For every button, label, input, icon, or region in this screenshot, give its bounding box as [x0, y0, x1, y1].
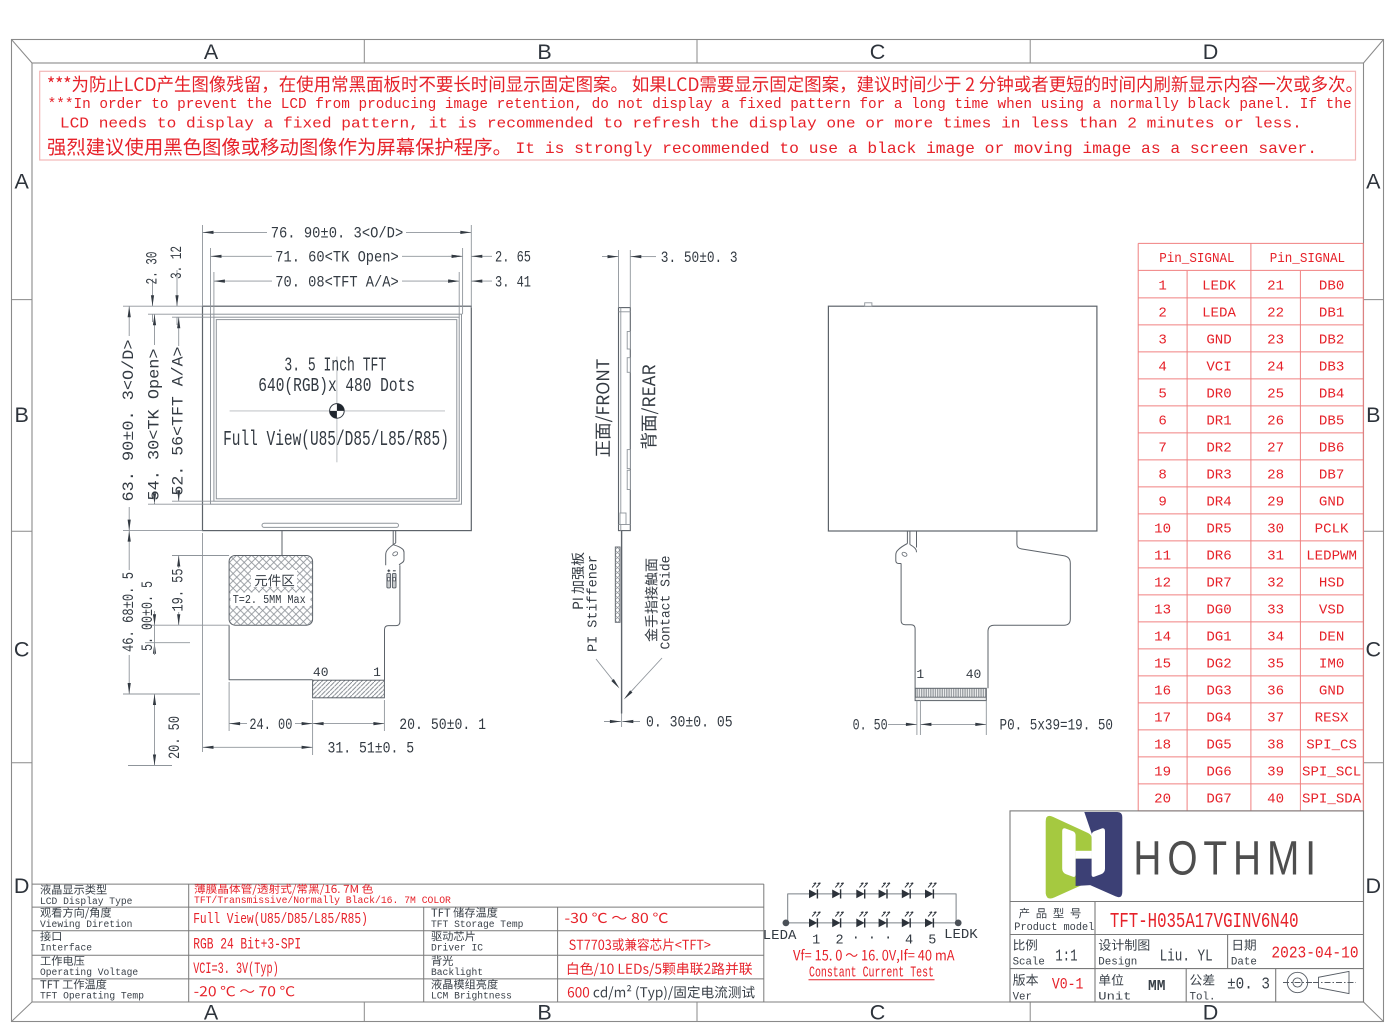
- svg-text:33: 33: [1267, 603, 1284, 619]
- svg-text:Contact Side: Contact Side: [660, 556, 675, 650]
- svg-text:Scale: Scale: [1013, 957, 1045, 969]
- svg-text:B: B: [15, 403, 29, 427]
- svg-text:DG1: DG1: [1206, 630, 1231, 646]
- svg-text:DB6: DB6: [1319, 441, 1344, 457]
- svg-text:DG6: DG6: [1206, 765, 1231, 781]
- svg-text:C: C: [870, 1001, 886, 1025]
- svg-text:640(RGB)x 480 Dots: 640(RGB)x 480 Dots: [258, 375, 415, 397]
- svg-text:3. 41: 3. 41: [495, 273, 531, 291]
- svg-text:PCLK: PCLK: [1315, 522, 1349, 538]
- svg-text:DG3: DG3: [1206, 684, 1231, 700]
- svg-text:1: 1: [373, 665, 381, 680]
- svg-text:DB3: DB3: [1319, 360, 1344, 376]
- svg-text:38: 38: [1267, 738, 1284, 754]
- svg-text:8: 8: [1158, 468, 1166, 484]
- svg-text:LEDK: LEDK: [944, 927, 978, 943]
- svg-text:13: 13: [1154, 603, 1171, 619]
- svg-text:A: A: [204, 40, 219, 64]
- svg-text:63. 90±0. 3<O/D>: 63. 90±0. 3<O/D>: [120, 340, 138, 502]
- svg-text:TFT/Transmissive/Normally Blac: TFT/Transmissive/Normally Black/16. 7M C…: [194, 895, 451, 907]
- svg-text:D: D: [1203, 1001, 1219, 1025]
- svg-text:±0. 3: ±0. 3: [1227, 976, 1270, 995]
- svg-text:46. 68±0. 5: 46. 68±0. 5: [120, 572, 138, 652]
- svg-text:0. 30±0. 05: 0. 30±0. 05: [646, 714, 733, 732]
- svg-text:Pin_SIGNAL: Pin_SIGNAL: [1270, 251, 1345, 267]
- svg-text:DR6: DR6: [1206, 549, 1231, 565]
- svg-text:11: 11: [1154, 549, 1171, 565]
- svg-text:2: 2: [835, 934, 843, 949]
- svg-text:GND: GND: [1206, 333, 1231, 349]
- svg-text:30: 30: [1267, 522, 1284, 538]
- svg-text:SPI_SDA: SPI_SDA: [1302, 792, 1362, 808]
- svg-text:34: 34: [1267, 630, 1284, 646]
- svg-text:D: D: [1203, 40, 1219, 64]
- svg-text:HSD: HSD: [1319, 576, 1344, 592]
- svg-text:29: 29: [1267, 495, 1284, 511]
- svg-text:C: C: [870, 40, 886, 64]
- svg-text:14: 14: [1154, 630, 1171, 646]
- svg-text:25: 25: [1267, 387, 1284, 403]
- svg-text:B: B: [1366, 403, 1380, 427]
- svg-text:LCD needs to display a fixed p: LCD needs to display a fixed pattern, it…: [60, 117, 1302, 133]
- svg-text:RGB 24 Bit+3-SPI: RGB 24 Bit+3-SPI: [193, 935, 301, 953]
- svg-text:1: 1: [1158, 279, 1166, 295]
- svg-text:20. 50±0. 1: 20. 50±0. 1: [399, 716, 486, 734]
- svg-text:IM0: IM0: [1319, 657, 1344, 673]
- svg-text:LEDK: LEDK: [1202, 279, 1236, 295]
- svg-text:DB4: DB4: [1319, 387, 1344, 403]
- svg-text:19: 19: [1154, 765, 1171, 781]
- svg-text:40: 40: [1267, 792, 1284, 808]
- svg-text:1:1: 1:1: [1055, 947, 1077, 966]
- svg-text:24: 24: [1267, 360, 1284, 376]
- svg-text:DR4: DR4: [1206, 495, 1231, 511]
- svg-text:DR0: DR0: [1206, 387, 1231, 403]
- svg-text:40: 40: [313, 665, 329, 680]
- svg-text:P0. 5x39=19. 50: P0. 5x39=19. 50: [1000, 717, 1114, 735]
- svg-text:MM: MM: [1148, 977, 1165, 995]
- svg-text:15: 15: [1154, 657, 1171, 673]
- svg-text:2: 2: [1158, 306, 1166, 322]
- svg-text:32: 32: [1267, 576, 1284, 592]
- svg-text:0. 50: 0. 50: [853, 717, 888, 735]
- svg-text:Liu. YL: Liu. YL: [1160, 948, 1213, 967]
- svg-text:***In order to prevent the LCD: ***In order to prevent the LCD from prod…: [48, 97, 1352, 113]
- svg-text:Tol.: Tol.: [1190, 992, 1216, 1004]
- svg-text:TFT Operating Temp: TFT Operating Temp: [40, 991, 144, 1003]
- svg-text:35: 35: [1267, 657, 1284, 673]
- svg-text:DB0: DB0: [1319, 279, 1344, 295]
- svg-text:VSD: VSD: [1319, 603, 1344, 619]
- svg-text:DG2: DG2: [1206, 657, 1231, 673]
- svg-text:3. 12: 3. 12: [168, 246, 186, 279]
- svg-text:TFT-H035A17VGINV6N40: TFT-H035A17VGINV6N40: [1110, 910, 1299, 934]
- svg-text:B: B: [537, 1001, 551, 1025]
- svg-text:Date: Date: [1231, 957, 1257, 969]
- svg-text:VCI=3. 3V(Typ): VCI=3. 3V(Typ): [193, 960, 279, 978]
- svg-text:Design: Design: [1098, 957, 1137, 969]
- svg-text:10: 10: [1154, 522, 1171, 538]
- svg-text:It is strongly recommended to: It is strongly recommended to use a blac…: [516, 140, 1318, 158]
- svg-text:18: 18: [1154, 738, 1171, 754]
- svg-text:DR1: DR1: [1206, 414, 1231, 430]
- svg-text:71. 60<TK Open>: 71. 60<TK Open>: [275, 249, 399, 267]
- svg-text:23: 23: [1267, 333, 1284, 349]
- svg-text:76. 90±0. 3<O/D>: 76. 90±0. 3<O/D>: [271, 225, 404, 243]
- svg-text:19. 55: 19. 55: [170, 569, 188, 612]
- svg-text:9: 9: [1158, 495, 1166, 511]
- svg-text:1: 1: [916, 667, 924, 682]
- svg-text:17: 17: [1154, 711, 1171, 727]
- svg-text:20. 50: 20. 50: [166, 716, 184, 759]
- svg-text:DG4: DG4: [1206, 711, 1231, 727]
- svg-text:3. 5 Inch TFT: 3. 5 Inch TFT: [284, 355, 386, 377]
- svg-text:5: 5: [928, 934, 936, 949]
- svg-text:Backlight: Backlight: [431, 967, 483, 979]
- svg-text:7: 7: [1158, 441, 1166, 457]
- svg-text:Interface: Interface: [40, 943, 92, 955]
- svg-text:24. 00: 24. 00: [249, 716, 292, 734]
- svg-text:Full View(U85/D85/L85/R85): Full View(U85/D85/L85/R85): [193, 912, 368, 928]
- svg-text:GND: GND: [1319, 495, 1344, 511]
- svg-text:LCM Brightness: LCM Brightness: [431, 991, 512, 1003]
- svg-text:DB2: DB2: [1319, 333, 1344, 349]
- svg-text:28: 28: [1267, 468, 1284, 484]
- svg-text:D: D: [14, 874, 30, 898]
- svg-text:Operating Voltage: Operating Voltage: [40, 967, 138, 979]
- svg-text:RESX: RESX: [1315, 711, 1349, 727]
- svg-text:Unit: Unit: [1098, 992, 1131, 1004]
- svg-text:DB1: DB1: [1319, 306, 1344, 322]
- svg-text:· · ·: · · ·: [852, 932, 893, 947]
- svg-text:DB5: DB5: [1319, 414, 1344, 430]
- svg-text:A: A: [15, 170, 30, 194]
- svg-text:GND: GND: [1319, 684, 1344, 700]
- svg-text:Full View(U85/D85/L85/R85): Full View(U85/D85/L85/R85): [223, 429, 449, 452]
- svg-text:DG7: DG7: [1206, 792, 1231, 808]
- svg-text:3: 3: [1158, 333, 1166, 349]
- svg-text:DR7: DR7: [1206, 576, 1231, 592]
- svg-text:DB7: DB7: [1319, 468, 1344, 484]
- svg-text:37: 37: [1267, 711, 1284, 727]
- svg-text:A: A: [204, 1001, 219, 1025]
- svg-text:DR5: DR5: [1206, 522, 1231, 538]
- svg-text:Ver: Ver: [1013, 992, 1032, 1004]
- svg-text:4: 4: [905, 934, 913, 949]
- svg-text:Product model: Product model: [1014, 922, 1094, 934]
- svg-text:LEDA: LEDA: [763, 928, 797, 944]
- svg-text:1: 1: [812, 934, 820, 949]
- svg-text:2. 65: 2. 65: [495, 249, 531, 267]
- svg-text:Driver IC: Driver IC: [431, 943, 483, 955]
- svg-text:Constant Current Test: Constant Current Test: [809, 965, 934, 981]
- svg-text:26: 26: [1267, 414, 1284, 430]
- svg-text:SPI_SCL: SPI_SCL: [1302, 765, 1361, 781]
- svg-text:SPI_CS: SPI_CS: [1306, 738, 1357, 754]
- svg-text:16: 16: [1154, 684, 1171, 700]
- svg-text:LEDA: LEDA: [1202, 306, 1236, 322]
- svg-text:DEN: DEN: [1319, 630, 1344, 646]
- svg-text:Viewing Diretion: Viewing Diretion: [40, 919, 132, 931]
- svg-text:DG0: DG0: [1206, 603, 1231, 619]
- svg-text:70. 08<TFT A/A>: 70. 08<TFT A/A>: [275, 273, 399, 291]
- svg-text:31: 31: [1267, 549, 1284, 565]
- svg-text:40: 40: [966, 667, 982, 682]
- svg-text:DR2: DR2: [1206, 441, 1231, 457]
- svg-text:20: 20: [1154, 792, 1171, 808]
- svg-text:22: 22: [1267, 306, 1284, 322]
- svg-text:D: D: [1366, 874, 1382, 898]
- svg-text:2023-04-10: 2023-04-10: [1271, 943, 1358, 962]
- svg-text:T=2. 5MM Max: T=2. 5MM Max: [233, 594, 306, 607]
- svg-text:6: 6: [1158, 414, 1166, 430]
- svg-text:V0-1: V0-1: [1052, 976, 1084, 994]
- svg-text:27: 27: [1267, 441, 1284, 457]
- svg-text:HOTHMI: HOTHMI: [1133, 832, 1322, 886]
- svg-text:21: 21: [1267, 279, 1284, 295]
- svg-text:12: 12: [1154, 576, 1171, 592]
- svg-text:C: C: [14, 637, 30, 661]
- svg-text:DG5: DG5: [1206, 738, 1231, 754]
- svg-text:DR3: DR3: [1206, 468, 1231, 484]
- svg-text:5. 00±0. 5: 5. 00±0. 5: [139, 581, 157, 651]
- svg-text:C: C: [1366, 637, 1382, 661]
- svg-text:LCD Display Type: LCD Display Type: [40, 896, 132, 908]
- svg-text:LEDPWM: LEDPWM: [1306, 549, 1357, 565]
- svg-text:5: 5: [1158, 387, 1166, 403]
- svg-text:TFT Storage Temp: TFT Storage Temp: [431, 920, 523, 931]
- svg-text:4: 4: [1158, 360, 1166, 376]
- svg-text:A: A: [1366, 170, 1381, 194]
- svg-text:2. 30: 2. 30: [144, 252, 162, 285]
- svg-text:39: 39: [1267, 765, 1284, 781]
- svg-text:Pin_SIGNAL: Pin_SIGNAL: [1159, 251, 1234, 267]
- svg-text:B: B: [537, 40, 551, 64]
- svg-text:PI Stiffener: PI Stiffener: [587, 555, 602, 652]
- svg-text:31. 51±0. 5: 31. 51±0. 5: [328, 740, 415, 758]
- svg-text:52. 56<TFT A/A>: 52. 56<TFT A/A>: [170, 347, 188, 496]
- svg-text:3. 50±0. 3: 3. 50±0. 3: [661, 249, 738, 267]
- svg-text:36: 36: [1267, 684, 1284, 700]
- svg-text:VCI: VCI: [1206, 360, 1231, 376]
- svg-text:54. 30<TK Open>: 54. 30<TK Open>: [146, 349, 164, 501]
